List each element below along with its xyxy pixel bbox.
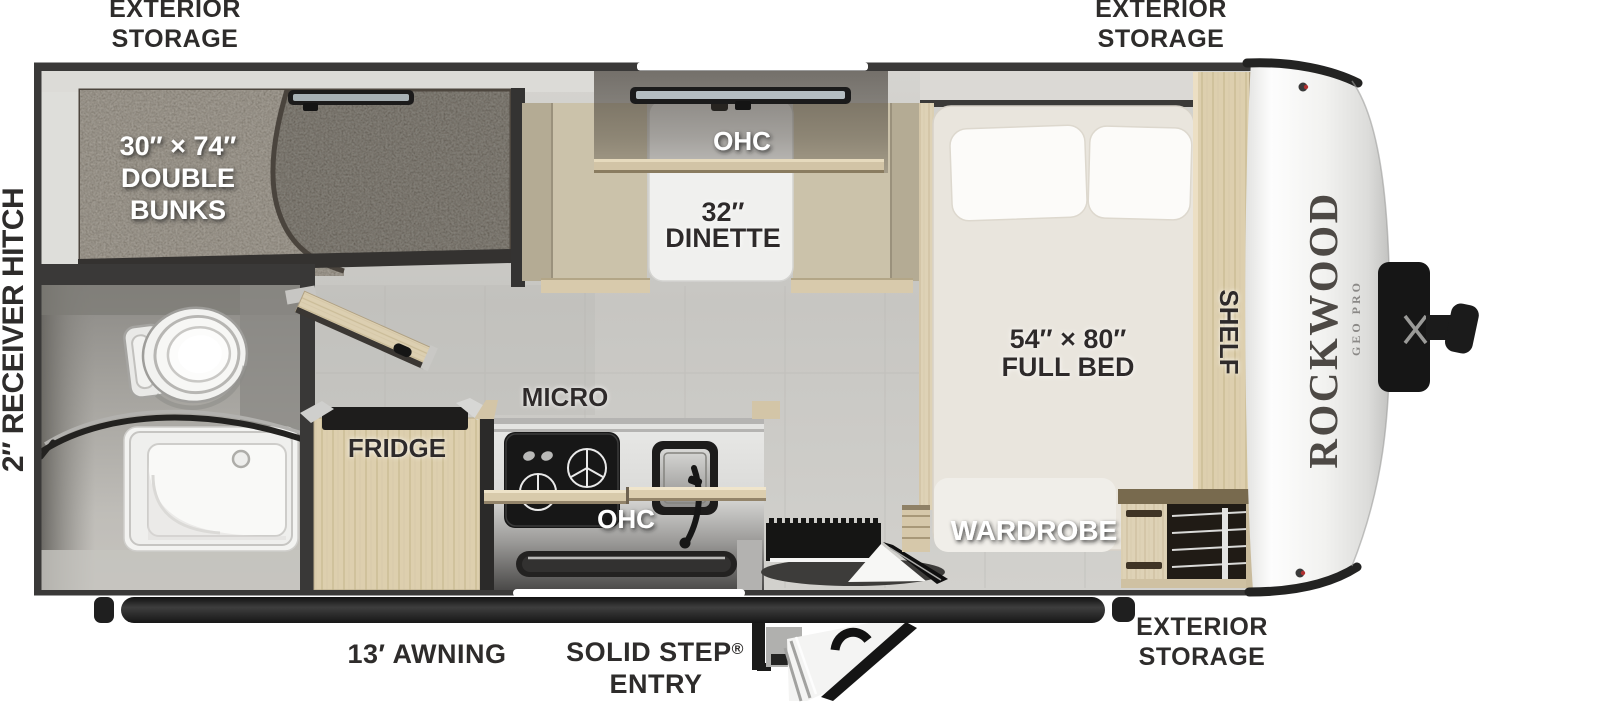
svg-text:SHELF: SHELF — [1214, 289, 1244, 374]
svg-text:ROCKWOOD: ROCKWOOD — [1300, 191, 1346, 468]
svg-text:ENTRY: ENTRY — [609, 669, 702, 699]
svg-text:DOUBLE: DOUBLE — [121, 163, 235, 193]
svg-text:FULL BED: FULL BED — [1002, 352, 1135, 382]
svg-text:OHC: OHC — [597, 504, 655, 534]
svg-text:13′ AWNING: 13′ AWNING — [348, 639, 507, 669]
svg-text:DINETTE: DINETTE — [665, 223, 781, 253]
svg-text:SOLID STEP®: SOLID STEP® — [566, 637, 744, 667]
svg-text:EXTERIOR: EXTERIOR — [1136, 613, 1268, 641]
svg-text:BUNKS: BUNKS — [130, 195, 226, 225]
svg-text:STORAGE: STORAGE — [112, 25, 239, 53]
svg-text:WARDROBE: WARDROBE — [951, 515, 1117, 546]
svg-text:STORAGE: STORAGE — [1139, 643, 1266, 671]
svg-text:54″ × 80″: 54″ × 80″ — [1010, 324, 1127, 354]
svg-text:STORAGE: STORAGE — [1098, 25, 1225, 53]
svg-text:OHC: OHC — [713, 126, 771, 156]
svg-text:EXTERIOR: EXTERIOR — [109, 0, 241, 23]
svg-text:MICRO: MICRO — [522, 382, 609, 412]
svg-text:2″ RECEIVER HITCH: 2″ RECEIVER HITCH — [0, 188, 30, 472]
svg-text:GEO PRO: GEO PRO — [1349, 280, 1363, 356]
svg-text:FRIDGE: FRIDGE — [348, 433, 446, 463]
svg-text:30″ × 74″: 30″ × 74″ — [120, 131, 237, 161]
svg-text:EXTERIOR: EXTERIOR — [1095, 0, 1227, 23]
